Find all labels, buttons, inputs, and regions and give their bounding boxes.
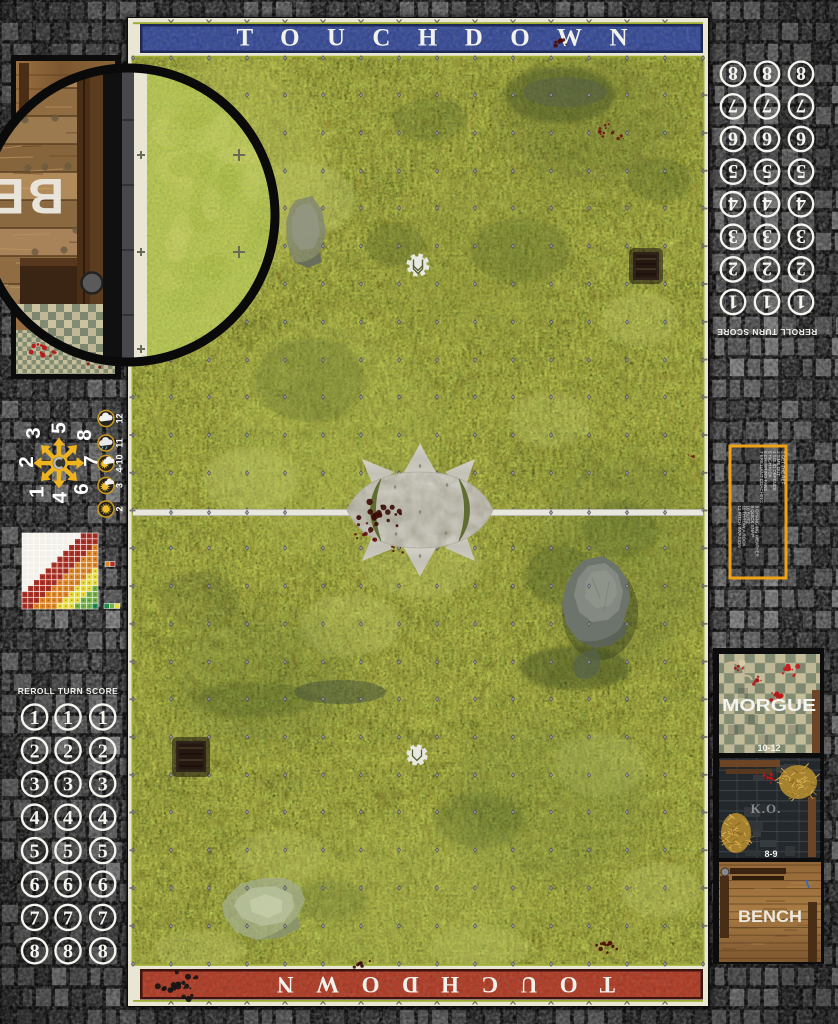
svg-text:1: 1 [728, 290, 738, 312]
svg-text:3: 3 [728, 225, 738, 247]
svg-text:2: 2 [63, 740, 73, 762]
svg-text:7: 7 [30, 907, 40, 929]
svg-text:2: 2 [728, 258, 738, 280]
svg-text:11: 11 [115, 438, 125, 448]
svg-text:4: 4 [63, 807, 73, 829]
svg-text:8: 8 [73, 429, 96, 440]
svg-text:E: E [0, 168, 25, 224]
svg-text:8: 8 [796, 62, 806, 84]
svg-text:6: 6 [70, 483, 93, 494]
svg-text:2: 2 [796, 258, 806, 280]
svg-text:8: 8 [762, 62, 772, 84]
svg-text:REROLL TURN SCORE: REROLL TURN SCORE [18, 686, 118, 696]
svg-text:2: 2 [98, 740, 108, 762]
svg-text:3: 3 [796, 225, 806, 247]
svg-text:6: 6 [796, 127, 806, 149]
svg-text:8: 8 [63, 941, 73, 963]
svg-text:REROLL TURN SCORE: REROLL TURN SCORE [717, 327, 817, 337]
svg-text:2: 2 [115, 506, 125, 511]
svg-text:1: 1 [63, 707, 73, 729]
svg-text:4: 4 [49, 491, 72, 503]
svg-text:3: 3 [98, 774, 108, 796]
svg-text:2: 2 [30, 740, 40, 762]
svg-text:1: 1 [26, 486, 49, 497]
svg-text:TOUCHDOWN: TOUCHDOWN [237, 25, 628, 52]
svg-text:TOUCHDOWN: TOUCHDOWN [277, 972, 615, 997]
svg-text:1: 1 [796, 290, 806, 312]
svg-text:4-10: 4-10 [115, 454, 125, 472]
svg-text:6: 6 [30, 874, 40, 896]
svg-text:6: 6 [98, 874, 108, 896]
svg-text:12 PITCH INVASION: 12 PITCH INVASION [737, 506, 742, 548]
svg-text:4: 4 [728, 193, 738, 215]
svg-text:8: 8 [98, 941, 108, 963]
svg-text:4: 4 [98, 807, 108, 829]
svg-text:2: 2 [762, 258, 772, 280]
svg-text:1: 1 [30, 707, 40, 729]
svg-text:6: 6 [63, 874, 73, 896]
svg-text:8: 8 [30, 941, 40, 963]
svg-text:K.O.: K.O. [751, 801, 782, 816]
svg-text:B: B [28, 168, 64, 224]
svg-text:8-9: 8-9 [764, 849, 777, 859]
svg-text:3: 3 [30, 774, 40, 796]
svg-text:3: 3 [63, 774, 73, 796]
svg-text:5: 5 [728, 160, 738, 182]
svg-text:4: 4 [762, 193, 772, 215]
svg-text:7: 7 [796, 95, 806, 117]
svg-text:2: 2 [15, 456, 38, 467]
svg-text:1: 1 [98, 707, 108, 729]
svg-text:10-12: 10-12 [757, 743, 780, 753]
svg-text:5: 5 [98, 841, 108, 863]
svg-text:7 BRILLIANT COACHING: 7 BRILLIANT COACHING [759, 451, 764, 503]
svg-text:5: 5 [796, 160, 806, 182]
svg-text:3: 3 [22, 427, 45, 438]
svg-text:7: 7 [98, 907, 108, 929]
svg-text:6: 6 [728, 127, 738, 149]
svg-text:5: 5 [30, 841, 40, 863]
svg-text:6: 6 [762, 127, 772, 149]
svg-text:3: 3 [762, 225, 772, 247]
svg-text:12: 12 [115, 413, 125, 423]
svg-text:3: 3 [115, 483, 125, 488]
svg-text:1: 1 [762, 290, 772, 312]
svg-text:7: 7 [63, 907, 73, 929]
svg-text:7: 7 [762, 95, 772, 117]
svg-text:MORGUE: MORGUE [722, 695, 816, 715]
svg-text:7: 7 [728, 95, 738, 117]
svg-text:5: 5 [48, 422, 71, 433]
svg-text:4: 4 [30, 807, 40, 829]
svg-text:4: 4 [796, 193, 806, 215]
svg-text:5: 5 [63, 841, 73, 863]
svg-text:8: 8 [728, 62, 738, 84]
svg-text:5: 5 [762, 160, 772, 182]
svg-text:BENCH: BENCH [738, 908, 802, 926]
